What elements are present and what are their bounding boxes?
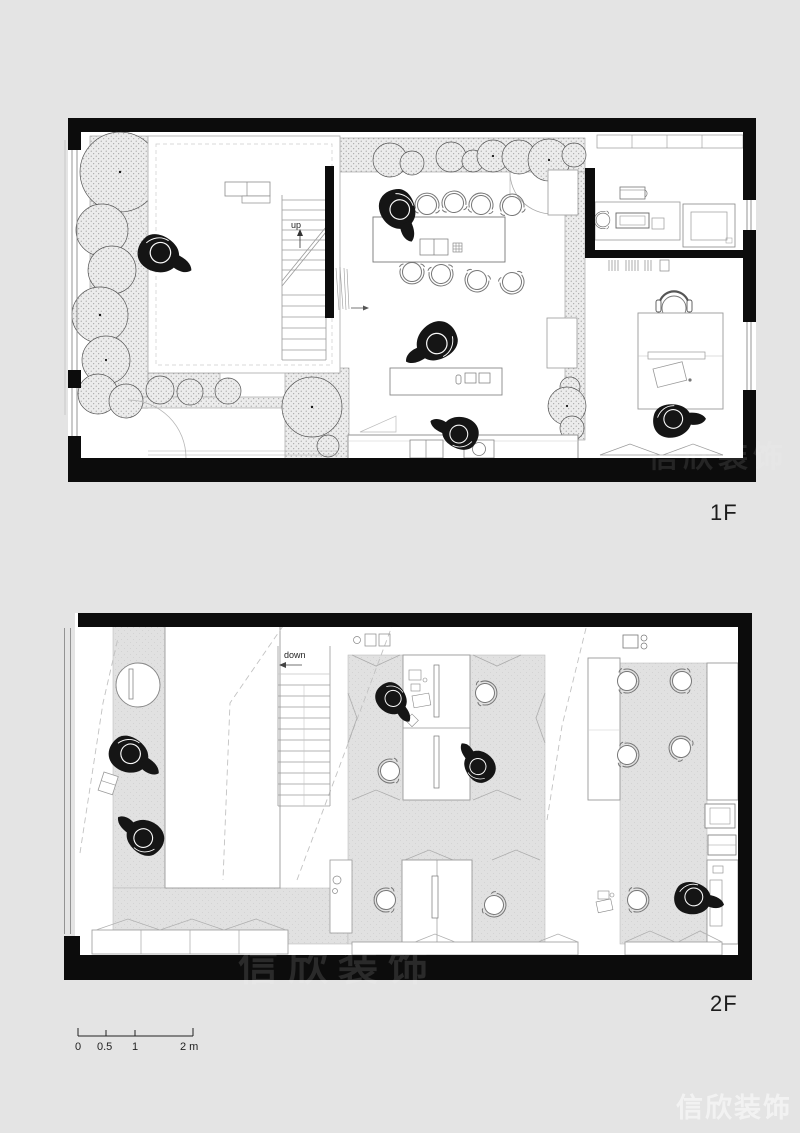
scale-tick-1: 1	[132, 1041, 138, 1053]
cabinet	[547, 318, 577, 368]
floor-plan-2f: down	[60, 608, 752, 980]
desk-strip	[707, 663, 738, 800]
scale-bar: 0 0.5 1 2 m	[70, 1024, 220, 1063]
printer	[705, 804, 735, 828]
monitor	[616, 213, 649, 228]
scale-tick-05: 0.5	[97, 1041, 112, 1053]
office-desk	[638, 313, 723, 409]
cabinet	[548, 170, 578, 215]
floor-plan-sheet: up	[0, 0, 800, 1133]
watermark: 信欣装饰	[676, 1086, 792, 1125]
upper-cabinets	[597, 135, 743, 148]
stair-direction-label-2f: down	[284, 650, 306, 660]
cooktop	[410, 440, 443, 458]
desk-strip	[588, 658, 620, 800]
floor-label-1f: 1F	[710, 500, 738, 526]
floor-plan-1f: up	[60, 110, 760, 490]
stair-direction-label-1f: up	[291, 220, 301, 230]
wall-shelf	[225, 182, 270, 196]
floor-label-2f: 2F	[710, 991, 738, 1017]
long-table	[165, 626, 280, 888]
scale-tick-2m: 2 m	[180, 1041, 198, 1053]
scale-tick-0: 0	[75, 1041, 81, 1053]
windows-2f	[65, 628, 71, 934]
